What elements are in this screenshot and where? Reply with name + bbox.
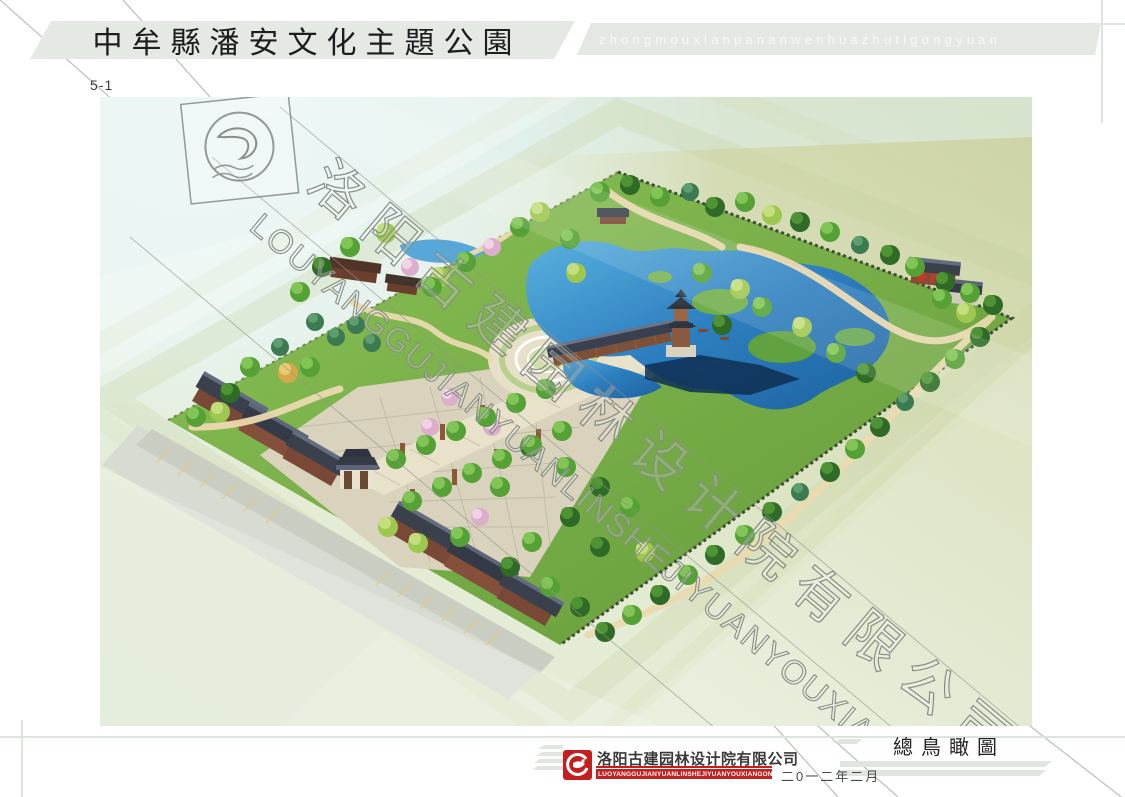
drawing-sheet: { "header": { "title": "中牟縣潘安文化主題公園", "p…	[0, 0, 1125, 797]
drawing-title: 總鳥瞰圖	[893, 731, 1005, 760]
company-name-underline	[596, 766, 772, 768]
watermark-logo-icon	[181, 97, 299, 204]
aerial-rendering-image: 洛阳古建园林设计院有限公司 LOUYANGGUJIANYUANLINSHEJIY…	[100, 97, 1032, 726]
page-title-pinyin: zhongmouxianpananwenhuazhutigongyuan	[577, 32, 1001, 47]
frame-line-bottom-left	[21, 720, 23, 797]
company-pinyin-band: LUOYANGGUJIANYUANLINSHEJIYUANYOUXIANGONG…	[596, 769, 772, 779]
sheet-number: 5-1	[90, 77, 113, 93]
title-band: 中牟縣潘安文化主題公園	[30, 21, 575, 59]
page-title: 中牟縣潘安文化主題公園	[84, 18, 522, 62]
pinyin-band: zhongmouxianpananwenhuazhutigongyuan	[577, 23, 1101, 55]
company-pinyin: LUOYANGGUJIANYUANLINSHEJIYUANYOUXIANGONG…	[596, 771, 772, 778]
frame-line-right	[1101, 0, 1103, 123]
issue-date: 二0一二年二月	[781, 766, 880, 785]
company-logo-icon	[563, 750, 592, 780]
